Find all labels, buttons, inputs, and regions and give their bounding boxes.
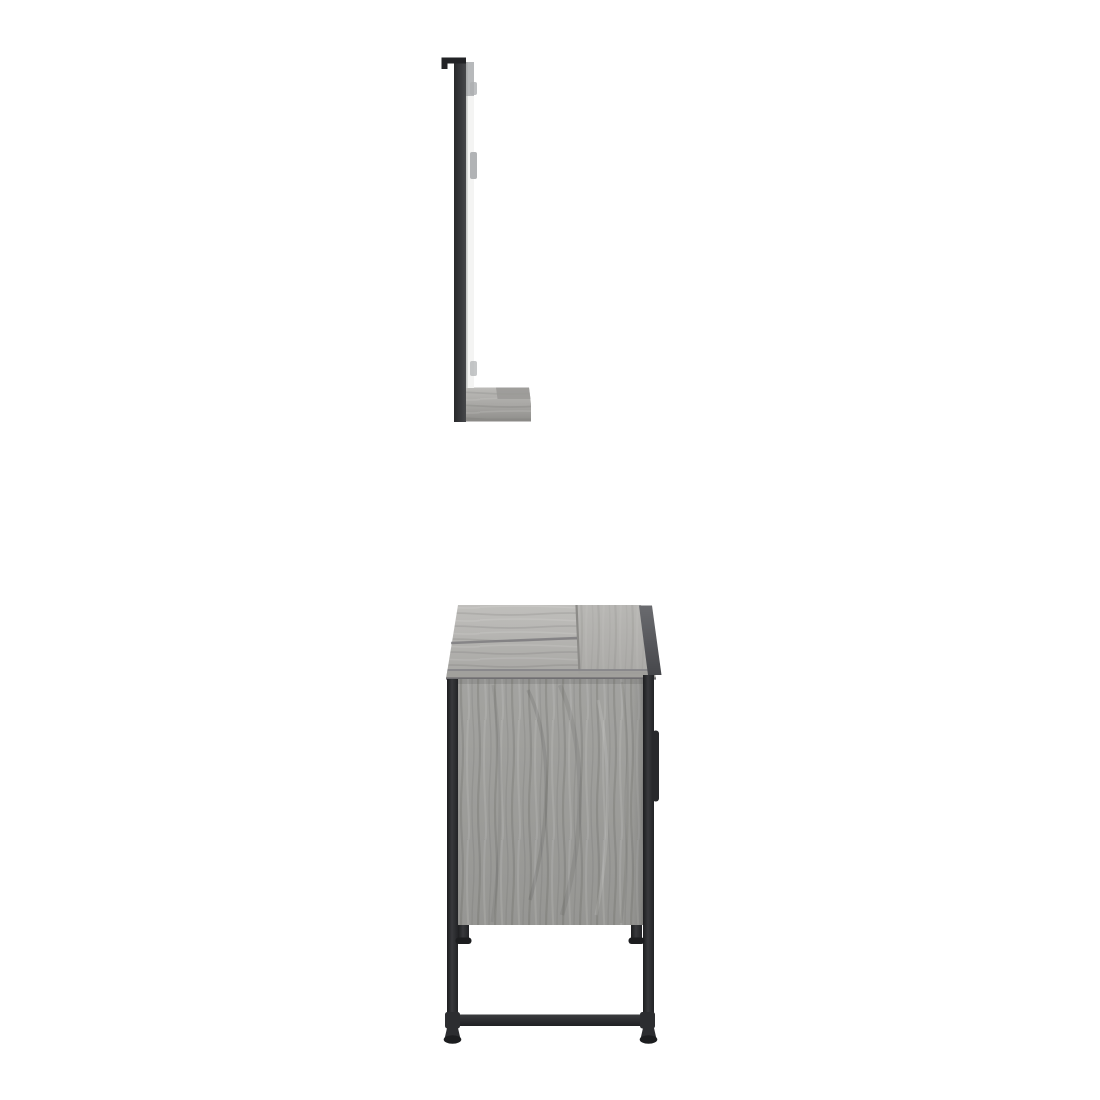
frame-feet	[444, 1028, 658, 1044]
adjustable-foot-right-cap	[629, 938, 645, 945]
mounting-clip	[470, 152, 477, 179]
mounting-clip	[470, 361, 477, 376]
wall-mirror-with-shelf	[442, 58, 532, 423]
frame-post-right	[643, 675, 654, 1040]
cabinet-raised-lid-grain	[576, 605, 651, 674]
side-panel-top-shade	[450, 679, 643, 684]
product-photo-stage	[0, 0, 1100, 1100]
base-crossbar-group	[445, 1012, 655, 1029]
mirror-frame-back	[454, 58, 466, 422]
mirror-glass-edge-shade	[466, 62, 468, 388]
door-handle	[653, 731, 660, 802]
side-panel-right-shade	[631, 679, 643, 925]
cabinet-side-panel	[450, 679, 643, 925]
mirror-shelf-shadow-patch	[496, 388, 531, 400]
sink-cabinet	[444, 605, 662, 1044]
furniture-set-side-view-image	[0, 0, 1100, 1100]
base-crossbar	[451, 1015, 649, 1027]
adjustable-feet	[456, 925, 645, 944]
frame-post-left	[447, 679, 458, 1040]
mounting-clip	[470, 82, 477, 95]
crossbar-sleeve-left	[445, 1012, 460, 1029]
mirror-shelf	[455, 388, 531, 422]
frame-foot-right-cap	[640, 1035, 658, 1044]
mirror-shelf-bottom-lip	[455, 419, 531, 422]
adjustable-foot-left-cap	[456, 938, 472, 945]
mirror-shelf-front-grain	[455, 404, 531, 421]
frame-foot-left-cap	[444, 1035, 462, 1044]
crossbar-sleeve-right	[640, 1012, 655, 1029]
